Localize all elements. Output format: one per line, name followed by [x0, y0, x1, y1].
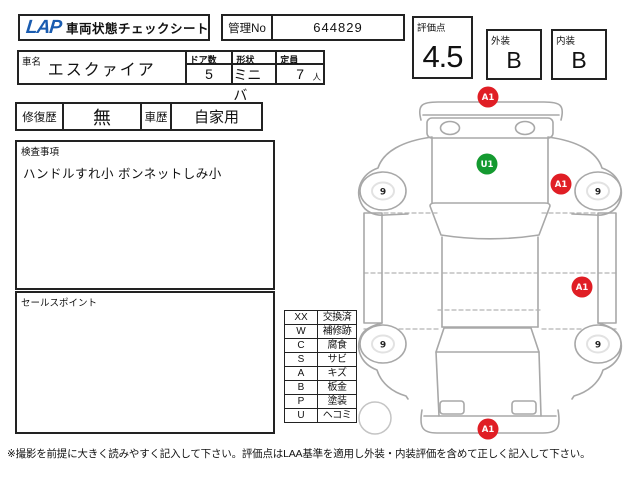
doors-value: 5 [187, 65, 232, 83]
car-body-top-view [359, 102, 622, 433]
windshield [430, 203, 550, 239]
legend-row: Sサビ [285, 353, 357, 367]
right-sill [598, 213, 616, 323]
svg-text:A1: A1 [482, 93, 495, 103]
legend-code: W [285, 325, 318, 339]
capacity-cell: 定員 7 人 [275, 52, 323, 83]
legend-row: C腐食 [285, 339, 357, 353]
capacity-number: 7 [296, 66, 304, 82]
tire-depth-rear-right: 9 [595, 341, 601, 351]
tail-light-left [440, 401, 464, 414]
vehicle-name-table: 車名 エスクァイア ドア数 5 形状 ミニバ 定員 7 人 [17, 50, 325, 85]
exterior-grade-value: B [488, 47, 540, 74]
legend-row: B板金 [285, 381, 357, 395]
spare-tire [359, 402, 391, 434]
management-number-value: 644829 [273, 16, 403, 39]
legend-row: Aキズ [285, 367, 357, 381]
interior-grade-value: B [553, 47, 605, 74]
legend-row: Uヘコミ [285, 409, 357, 423]
management-number-box: 管理No 644829 [221, 14, 405, 41]
repair-history-label: 修復歴 [17, 104, 62, 129]
svg-text:A1: A1 [576, 283, 589, 293]
capacity-value: 7 人 [277, 65, 323, 83]
cabin-sides [442, 237, 538, 327]
vehicle-check-sheet: LAP 車両状態チェックシート 管理No 644829 評価点 4.5 外装 B… [0, 0, 640, 480]
tire-depth-labels: 9999 [380, 188, 601, 351]
legend-code: U [285, 409, 318, 423]
svg-text:U1: U1 [481, 160, 494, 170]
repair-history-row: 修復歴 無 車歴 自家用 [15, 102, 263, 131]
panel-seam-lines [364, 213, 616, 329]
car-use-label: 車歴 [140, 104, 170, 129]
legend-code: XX [285, 311, 318, 325]
car-use-value: 自家用 [170, 104, 261, 129]
repair-history-value: 無 [62, 104, 140, 129]
inspection-notes-box: 検査事項 ハンドルすれ小 ボンネットしみ小 [15, 140, 275, 290]
shape-label: 形状 [233, 52, 275, 65]
legend-code: S [285, 353, 318, 367]
legend-row: P塗装 [285, 395, 357, 409]
headlamp-left [441, 122, 460, 135]
svg-text:A1: A1 [482, 425, 495, 435]
svg-text:A1: A1 [555, 180, 568, 190]
marker-a1-front-bumper: A1 [478, 87, 499, 108]
doors-label: ドア数 [187, 52, 232, 65]
wheels [360, 172, 621, 363]
marker-a1-rear-bumper: A1 [478, 419, 499, 440]
legend-code: C [285, 339, 318, 353]
rear-window [436, 328, 539, 352]
left-sill [364, 213, 382, 323]
capacity-label: 定員 [277, 52, 323, 65]
exterior-grade-box: 外装 B [486, 29, 542, 80]
interior-grade-label: 内装 [556, 33, 575, 47]
condition-code-legend: XX交換済 W補修跡 C腐食 Sサビ Aキズ B板金 P塗装 Uヘコミ [284, 310, 357, 423]
damage-markers: A1U1A1A1A1 [477, 87, 593, 440]
interior-grade-box: 内装 B [551, 29, 607, 80]
shape-cell: 形状 ミニバ [231, 52, 275, 83]
legend-row: XX交換済 [285, 311, 357, 325]
legend-code: A [285, 367, 318, 381]
sales-point-box: セールスポイント [15, 291, 275, 434]
evaluation-score-value: 4.5 [414, 39, 471, 75]
logo-title-box: LAP 車両状態チェックシート [18, 14, 210, 41]
vehicle-name-cell: 車名 エスクァイア [19, 52, 185, 83]
tire-depth-front-right: 9 [595, 188, 601, 198]
inspection-notes-text: ハンドルすれ小 ボンネットしみ小 [23, 163, 222, 182]
legend-row: W補修跡 [285, 325, 357, 339]
inspection-notes-label: 検査事項 [21, 144, 59, 158]
legend-code: B [285, 381, 318, 395]
vehicle-name-value: エスクァイア [19, 56, 185, 80]
marker-a1-right-front-fender: A1 [551, 174, 572, 195]
tire-depth-rear-left: 9 [380, 341, 386, 351]
shape-value: ミニバ [233, 65, 275, 105]
evaluation-score-label: 評価点 [417, 20, 446, 34]
sheet-title: 車両状態チェックシート [66, 18, 209, 37]
legend-code: P [285, 395, 318, 409]
headlamp-right [516, 122, 535, 135]
marker-u1-hood: U1 [477, 154, 498, 175]
car-condition-diagram: 9999 A1U1A1A1A1 [350, 82, 640, 452]
evaluation-score-box: 評価点 4.5 [412, 16, 473, 79]
tail-light-right [512, 401, 536, 414]
capacity-unit: 人 [312, 71, 321, 83]
marker-a1-right-rear-panel: A1 [572, 277, 593, 298]
doors-cell: ドア数 5 [185, 52, 232, 83]
management-number-label: 管理No [223, 16, 273, 39]
tire-depth-front-left: 9 [380, 188, 386, 198]
exterior-grade-label: 外装 [491, 33, 510, 47]
hatch-sides [436, 352, 541, 416]
sales-point-label: セールスポイント [21, 295, 97, 309]
lap-logo: LAP [19, 17, 67, 39]
